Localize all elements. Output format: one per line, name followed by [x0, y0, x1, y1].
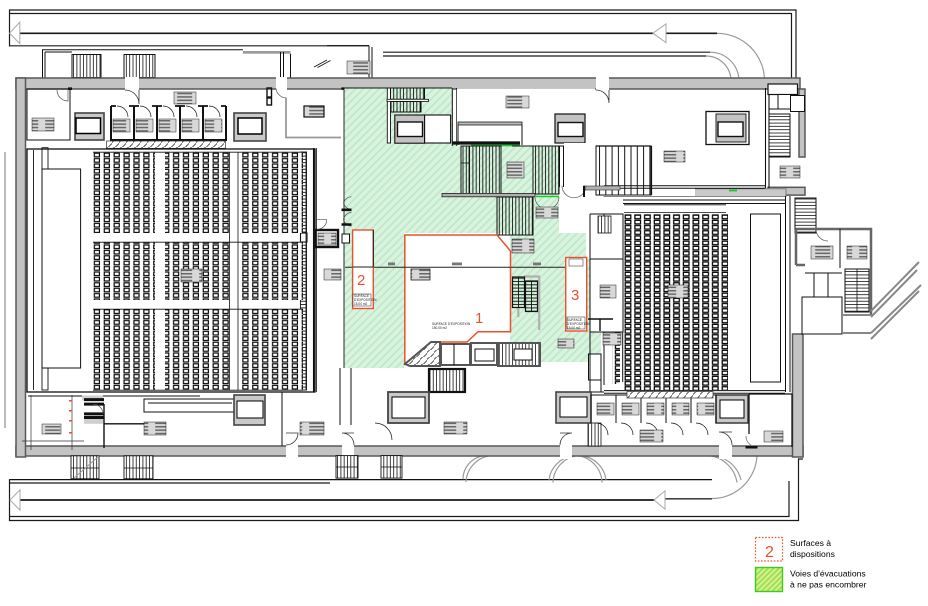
svg-text:Surfaces à: Surfaces à [790, 538, 831, 548]
svg-text:2: 2 [357, 272, 365, 289]
svg-text:à ne pas encombrer: à ne pas encombrer [790, 580, 867, 590]
svg-text:2: 2 [765, 544, 774, 561]
svg-text:15.00 m2: 15.00 m2 [354, 302, 368, 306]
svg-text:dispositions: dispositions [790, 549, 835, 559]
svg-text:Voies d'évacuations: Voies d'évacuations [790, 569, 866, 579]
svg-text:15.00 m2: 15.00 m2 [567, 326, 581, 330]
svg-text:1: 1 [475, 310, 483, 327]
svg-text:3: 3 [571, 287, 579, 304]
svg-text:150.00 m2: 150.00 m2 [432, 326, 447, 330]
